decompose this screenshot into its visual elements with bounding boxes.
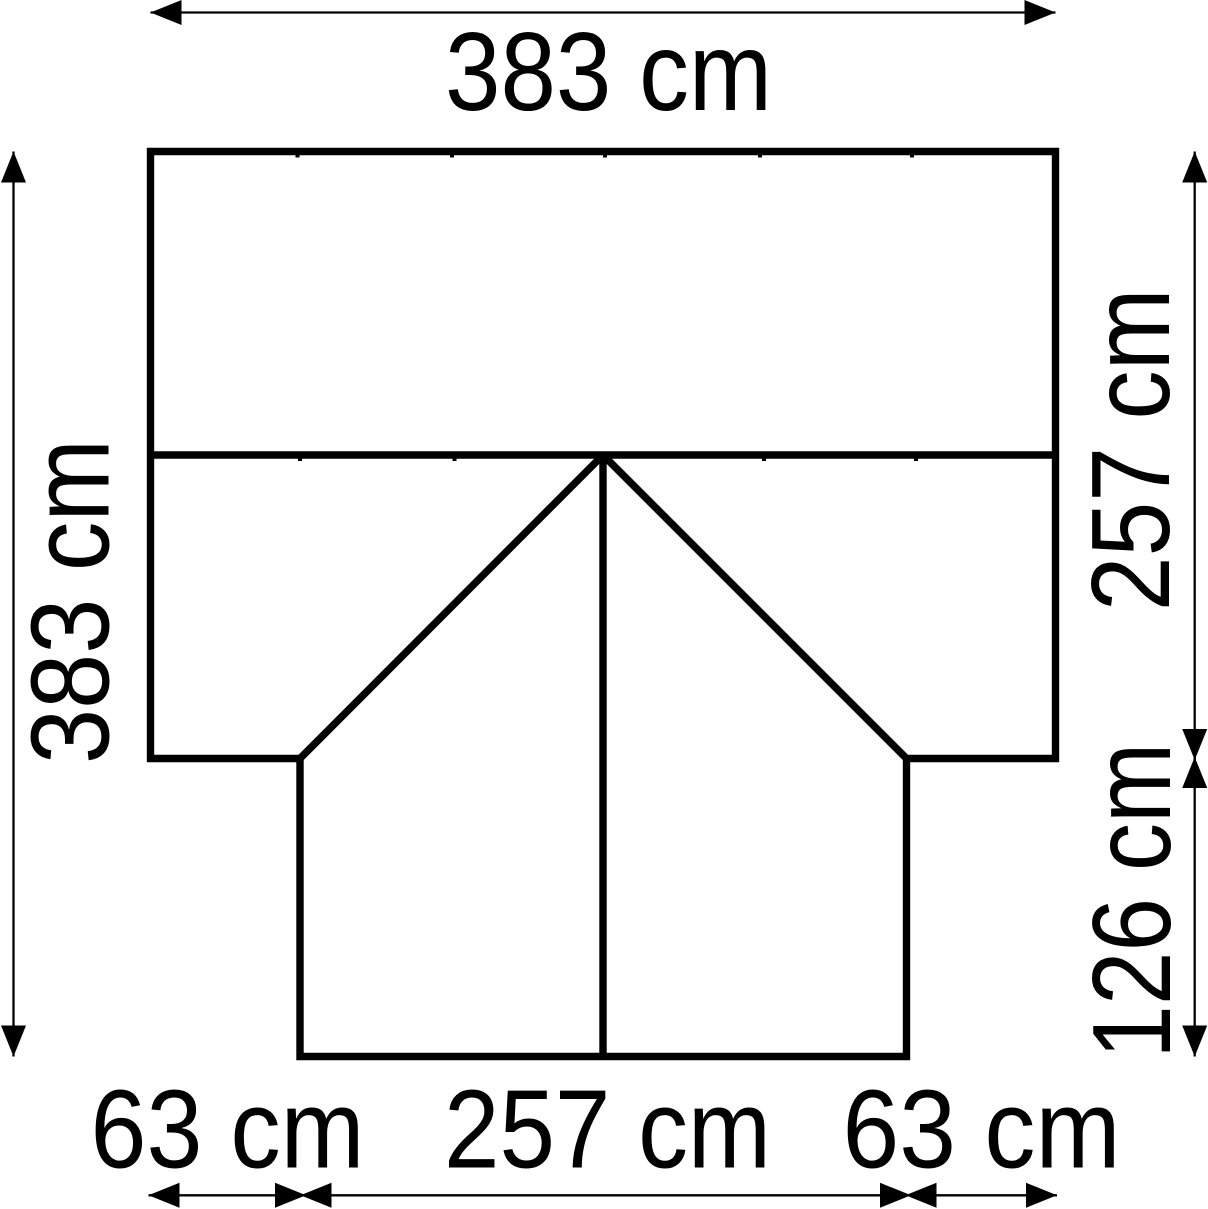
- svg-text:257 cm: 257 cm: [1069, 288, 1193, 611]
- svg-text:383 cm: 383 cm: [8, 439, 132, 764]
- svg-text:63 cm: 63 cm: [91, 1068, 365, 1192]
- svg-text:383 cm: 383 cm: [445, 10, 772, 134]
- svg-text:126 cm: 126 cm: [1070, 743, 1194, 1059]
- svg-text:63 cm: 63 cm: [843, 1068, 1121, 1192]
- svg-text:257 cm: 257 cm: [444, 1068, 771, 1192]
